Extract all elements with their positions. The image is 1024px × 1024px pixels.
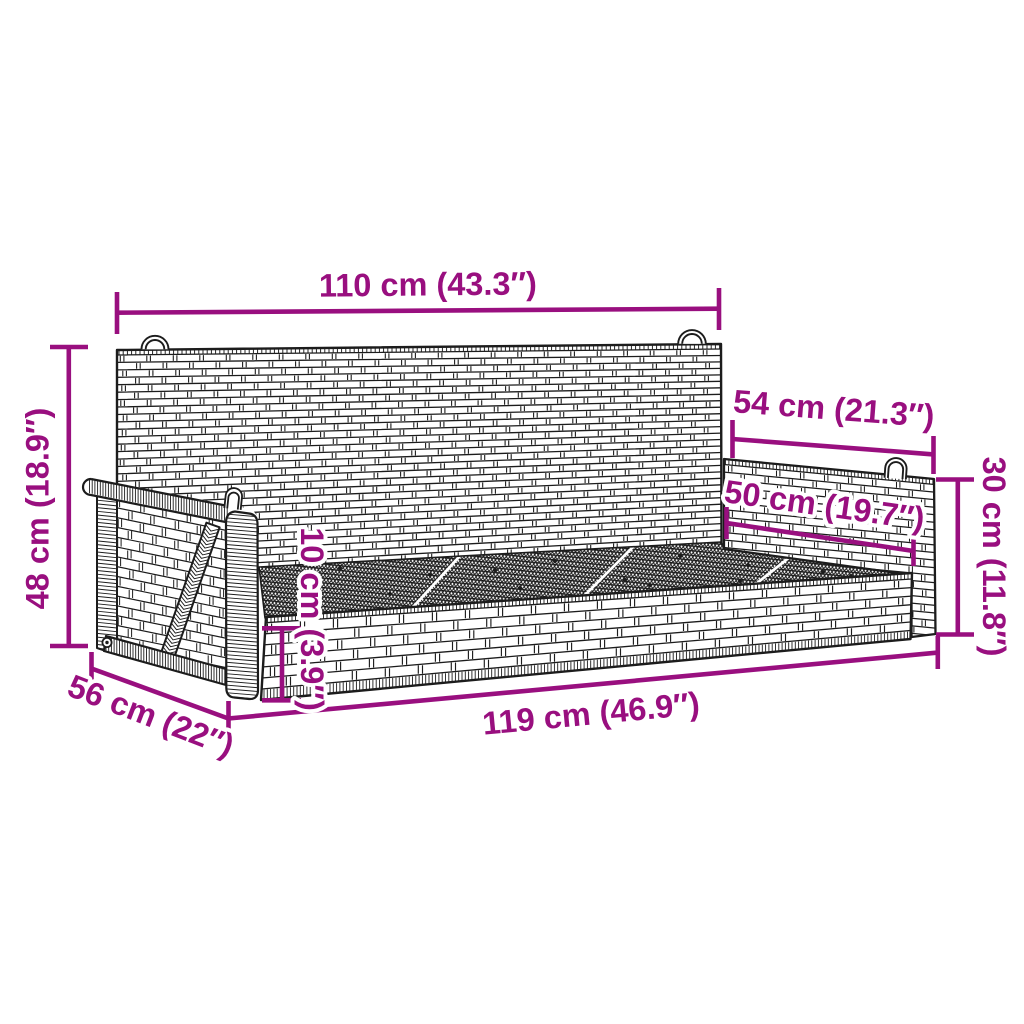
svg-text:48 cm (18.9″): 48 cm (18.9″) <box>20 408 56 610</box>
svg-text:30 cm (11.8″): 30 cm (11.8″) <box>976 457 1012 657</box>
svg-text:110 cm (43.3″): 110 cm (43.3″) <box>319 265 537 303</box>
svg-text:10 cm (3.9″): 10 cm (3.9″) <box>294 527 330 711</box>
